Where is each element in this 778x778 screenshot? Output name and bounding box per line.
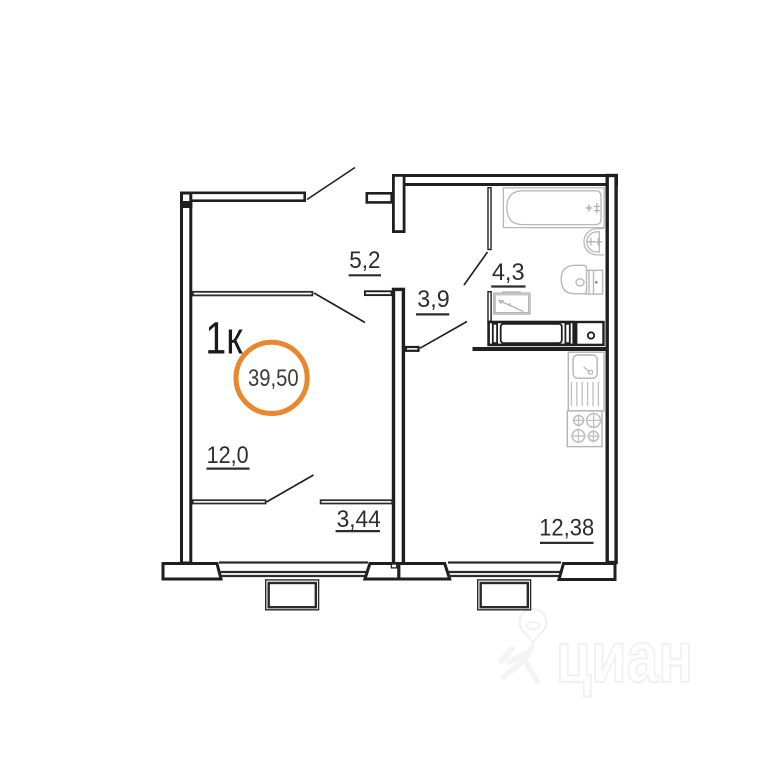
svg-text:5,2: 5,2 [349, 247, 380, 274]
svg-text:1к: 1к [205, 312, 243, 363]
svg-text:12,38: 12,38 [539, 515, 594, 542]
svg-text:4,3: 4,3 [492, 259, 525, 286]
svg-text:3,9: 3,9 [417, 286, 449, 313]
svg-text:12,0: 12,0 [207, 442, 249, 469]
svg-text:циан: циан [556, 618, 693, 698]
svg-text:3,44: 3,44 [337, 506, 381, 533]
svg-text:39,50: 39,50 [248, 365, 299, 392]
